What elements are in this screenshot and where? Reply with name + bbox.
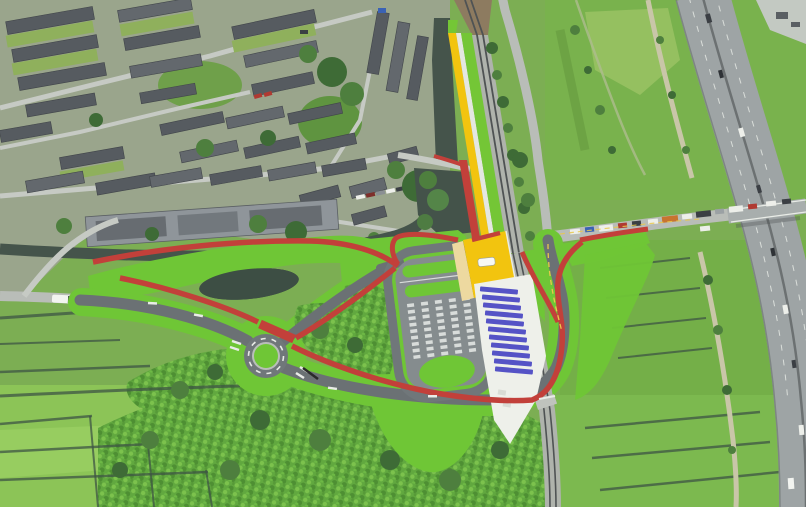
- aerial-plan-map: Aerial photograph of a Dutch semi-rural …: [0, 0, 806, 507]
- map-canvas: [0, 0, 806, 507]
- roundabout: [244, 334, 288, 378]
- bus-glyph: [478, 257, 496, 267]
